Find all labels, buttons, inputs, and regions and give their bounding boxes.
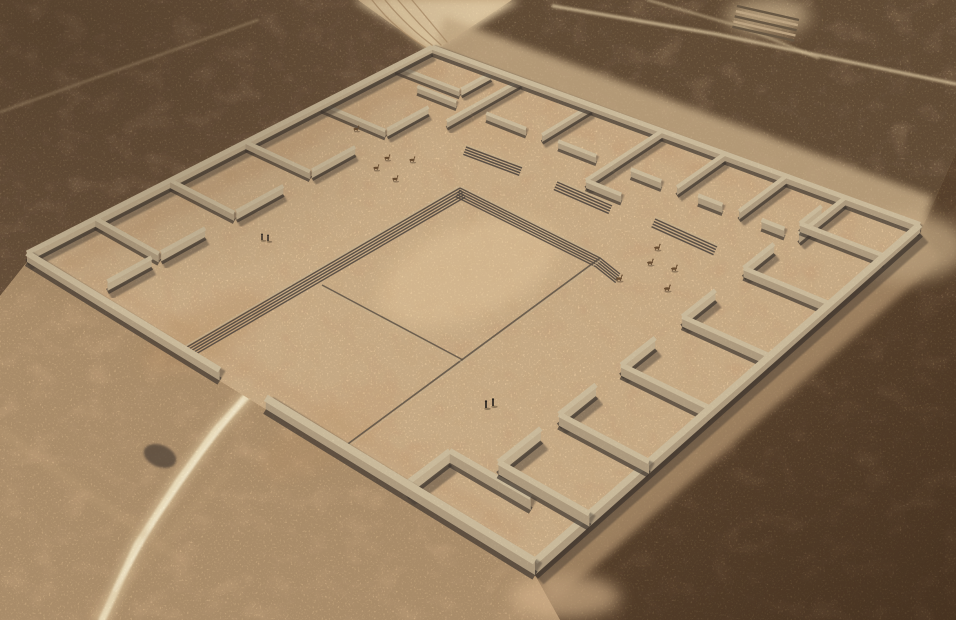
desert-compound-render-stage	[0, 0, 956, 620]
tone-overlays-group	[0, 0, 956, 620]
site-3d-render	[0, 0, 956, 620]
